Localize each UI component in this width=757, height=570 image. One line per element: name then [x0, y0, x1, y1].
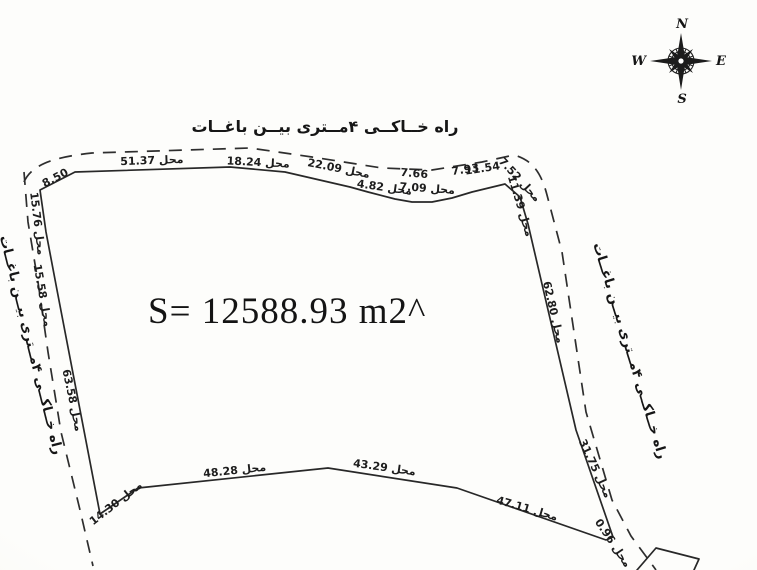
adjacent-parcel-corner: [637, 548, 699, 570]
compass-rose: N E S W: [631, 17, 727, 107]
dimension-label: محل 62.80: [540, 280, 567, 344]
survey-sheet: 8.50 محل 51.37 محل 18.24 محل 22.09 7.66 …: [0, 0, 757, 570]
dimension-label: 0.96 محل: [592, 516, 634, 569]
compass-north-label: N: [675, 17, 689, 32]
compass-hub: [678, 58, 684, 64]
dimension-label: محل 43.29: [352, 457, 416, 479]
road-name-top: راه خــاکــی ۴مــتری بیــن باغــات: [192, 117, 459, 136]
compass-south-label: S: [677, 92, 686, 107]
dimension-label: محل 31.75: [576, 437, 614, 500]
dimension-label: محل 51.37: [120, 153, 184, 168]
dimension-labels: 8.50 محل 51.37 محل 18.24 محل 22.09 7.66 …: [27, 153, 634, 570]
dimension-label: 8.50: [40, 166, 71, 191]
dimension-label: محل 14.30: [87, 479, 145, 528]
area-value: S= 12588.93 m2^: [148, 291, 426, 332]
dimension-label: 7.66: [400, 166, 429, 181]
dimension-label: محل 47.11: [495, 494, 559, 524]
survey-drawing: 8.50 محل 51.37 محل 18.24 محل 22.09 7.66 …: [0, 0, 757, 570]
compass-west-label: W: [631, 54, 647, 69]
road-name-right: راه خــاکــی ۴مــتری بیــن باغــات: [589, 241, 670, 461]
dimension-label: محل 15.58: [31, 263, 55, 327]
dimension-label: محل 63.58: [59, 368, 85, 433]
compass-east-label: E: [715, 54, 727, 69]
dimension-label: 15.76 محل: [27, 191, 48, 255]
